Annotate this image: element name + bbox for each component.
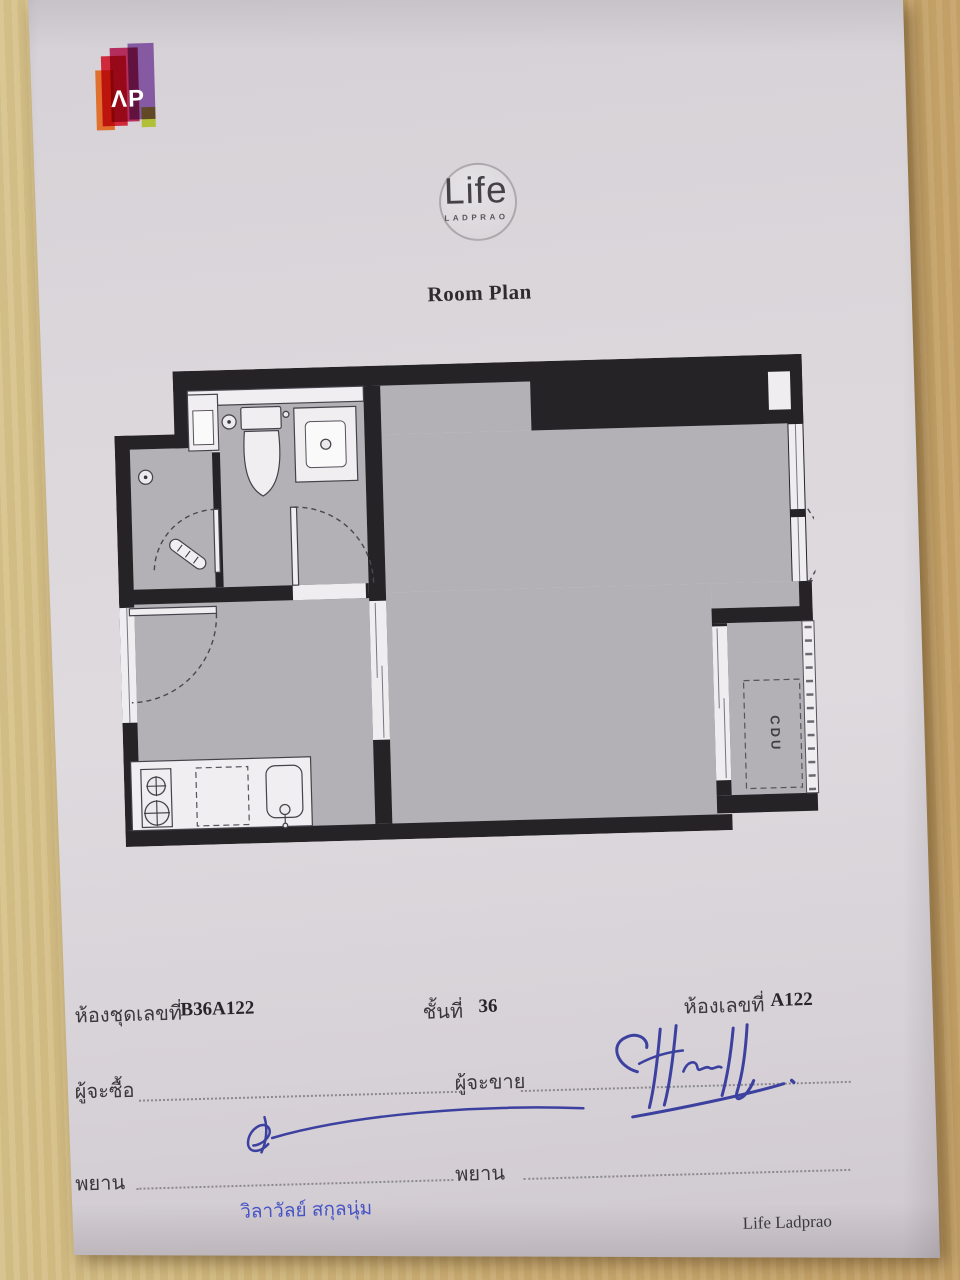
footer-project-name: Life Ladprao bbox=[742, 1211, 832, 1233]
ap-developer-logo: ΛP bbox=[95, 43, 161, 135]
faucet bbox=[280, 804, 290, 814]
shower-door-leaf bbox=[214, 509, 221, 572]
shaft-opening bbox=[768, 371, 791, 410]
photo-scene: ΛP Life LADPRAO Room Plan bbox=[0, 0, 960, 1280]
witness-signature bbox=[221, 1091, 593, 1165]
document-paper: ΛP Life LADPRAO Room Plan bbox=[0, 0, 960, 1280]
floor-plan-drawing: CDU bbox=[113, 354, 823, 847]
floor-plan: CDU bbox=[113, 354, 823, 847]
paper-sheet: ΛP Life LADPRAO Room Plan bbox=[0, 0, 960, 1280]
cdu-label: CDU bbox=[767, 715, 783, 753]
witness-printed-name: วิลาวัลย์ สกุลนุ่ม bbox=[216, 1193, 397, 1228]
seller-signature bbox=[596, 1012, 829, 1128]
room-number-value: A122 bbox=[770, 989, 813, 1012]
toilet-tank bbox=[241, 406, 282, 429]
window-swing bbox=[808, 508, 823, 581]
unit-number-value: B36A122 bbox=[180, 997, 254, 1021]
document-content: ΛP Life LADPRAO Room Plan bbox=[0, 0, 960, 1280]
witness-left-signature-line bbox=[136, 1161, 453, 1190]
kitchen-fixtures bbox=[131, 757, 313, 832]
unit-number-label: ห้องชุดเลขที่ bbox=[74, 996, 182, 1031]
life-logo-name: Life bbox=[405, 168, 546, 214]
floor-value: 36 bbox=[478, 996, 498, 1019]
page-title: Room Plan bbox=[379, 278, 580, 309]
floor-label: ชั้นที่ bbox=[422, 995, 463, 1028]
witness-left-label: พยาน bbox=[75, 1166, 126, 1199]
buyer-label: ผู้จะซื้อ bbox=[74, 1074, 135, 1108]
witness-right-label: พยาน bbox=[455, 1157, 506, 1190]
ap-logo-text: ΛP bbox=[100, 85, 157, 115]
